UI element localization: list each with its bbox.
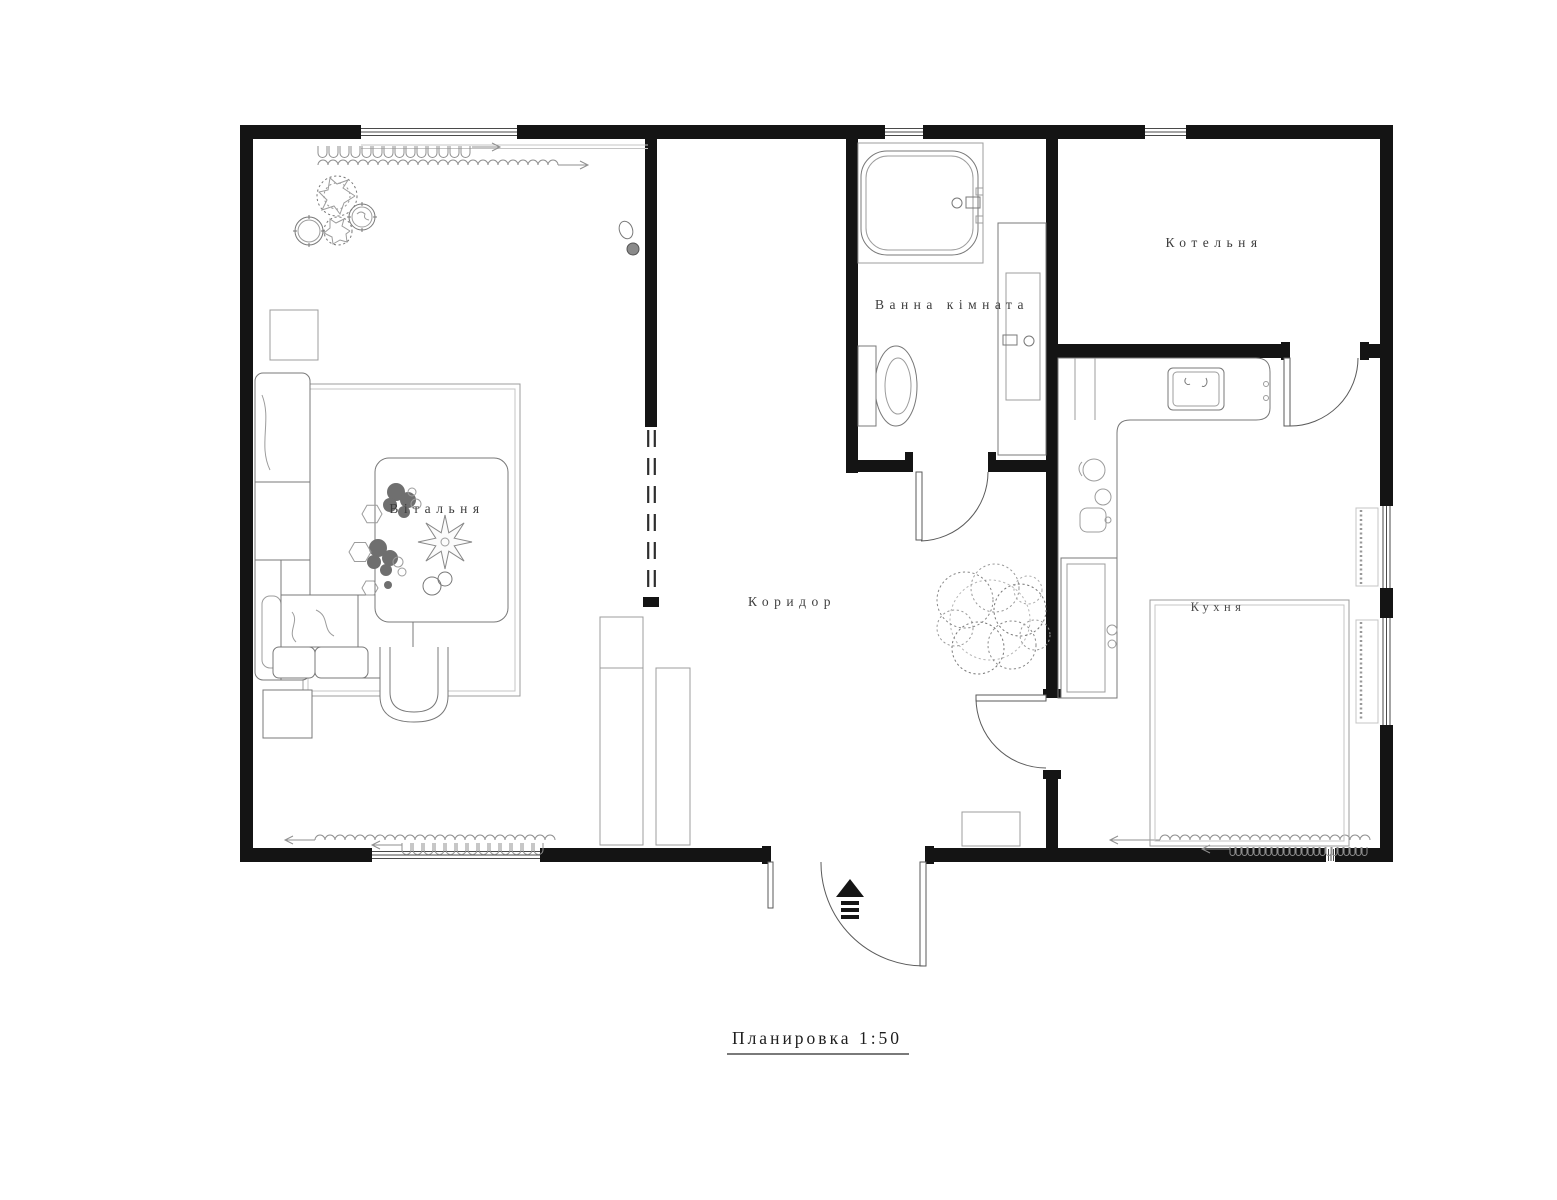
wall-segment: [1186, 125, 1393, 139]
room-label-boiler: Котельня: [1165, 235, 1262, 250]
wall-segment: [1380, 588, 1393, 618]
entrance-arrow-icon: [836, 879, 864, 919]
wall-segment: [846, 460, 913, 472]
window: [1383, 618, 1390, 725]
kitchen-counter: [1058, 358, 1270, 698]
door-boiler: [1284, 358, 1358, 426]
door-kitchen: [976, 695, 1046, 768]
floorplan-canvas: Вітальня Ванна кімната Котельня Коридор …: [0, 0, 1557, 1200]
wall-segment: [517, 125, 645, 139]
radiator-icon: [318, 160, 558, 165]
living-room-furniture: [255, 176, 639, 738]
wall-segment: [846, 125, 858, 473]
wall-segment: [240, 125, 361, 139]
wall-segment: [1046, 344, 1290, 358]
radiator-icon: [402, 843, 545, 855]
door-leaf: [916, 472, 922, 540]
wall-segment: [657, 125, 846, 139]
drain: [952, 198, 962, 208]
door-bathroom: [916, 472, 988, 541]
plant-pot: [293, 215, 325, 247]
door-jamb-cap: [762, 846, 771, 864]
kitchen-rug: [1150, 600, 1349, 846]
window-sill: [1356, 508, 1378, 723]
wall-segment: [923, 125, 1046, 139]
side-table: [270, 310, 318, 360]
window: [885, 129, 923, 136]
kitchen-sink: [1168, 368, 1224, 410]
bathtub: [858, 143, 983, 263]
toilet: [858, 346, 917, 426]
star-ornament: [418, 515, 472, 569]
door-leaf: [976, 695, 1046, 701]
page: Вітальня Ванна кімната Котельня Коридор …: [0, 0, 1557, 1200]
wall-segment: [240, 848, 372, 862]
door-entry: [768, 862, 926, 966]
room-label-living: Вітальня: [389, 501, 484, 516]
room-label-kitchen: Кухня: [1191, 600, 1246, 614]
wall-decor: [617, 219, 639, 255]
window: [1383, 506, 1390, 588]
door-jamb-cap: [1043, 770, 1061, 779]
radiator-icon: [1160, 835, 1370, 840]
wall-segment: [1046, 125, 1058, 698]
door-leaf: [920, 862, 926, 966]
stove-hob: [1079, 459, 1111, 532]
wall-segment: [1380, 725, 1393, 862]
wall-segment: [540, 848, 762, 862]
door-leaf: [768, 862, 773, 908]
door-leaf: [1284, 358, 1290, 426]
door-swing-arc: [921, 472, 988, 541]
wall-segment: [645, 125, 657, 427]
plan-title-block: Планировка 1:50: [727, 1028, 909, 1054]
armchair: [380, 647, 448, 722]
wall-segment: [988, 460, 1046, 472]
window: [1145, 129, 1186, 136]
room-label-bathroom: Ванна кімната: [875, 297, 1029, 312]
radiator-icon: [315, 835, 555, 840]
ottoman: [263, 690, 312, 738]
window: [361, 129, 517, 136]
door-jamb-cap: [988, 452, 996, 472]
wall-segment: [1046, 770, 1058, 862]
radiator-icon: [318, 146, 472, 158]
plan-title: Планировка 1:50: [732, 1028, 902, 1048]
door-jamb-cap: [643, 597, 659, 607]
room-label-corridor: Коридор: [748, 594, 836, 609]
doormat: [962, 812, 1020, 846]
wall-segment: [1058, 125, 1145, 139]
wall-segment: [1380, 125, 1393, 506]
potted-plants: [293, 176, 377, 247]
indoor-tree: [937, 564, 1050, 674]
wardrobe: [656, 668, 690, 845]
window: [372, 852, 540, 859]
door-jamb-cap: [1360, 342, 1369, 360]
kitchen-lower-cabinet: [1061, 558, 1117, 698]
wall-segment: [858, 125, 885, 139]
wardrobe: [600, 617, 643, 845]
wall-segment: [240, 125, 253, 862]
plant-pot: [347, 202, 377, 232]
door-swing-arc: [1290, 358, 1358, 426]
door-jamb-cap: [925, 846, 934, 864]
open-passage-dashed: [648, 430, 655, 597]
door-swing-arc: [976, 698, 1046, 768]
door-jamb-cap: [905, 452, 913, 472]
door-jamb-cap: [1281, 342, 1290, 360]
vanity-sink: [998, 223, 1046, 455]
door-swing-arc: [821, 862, 924, 966]
